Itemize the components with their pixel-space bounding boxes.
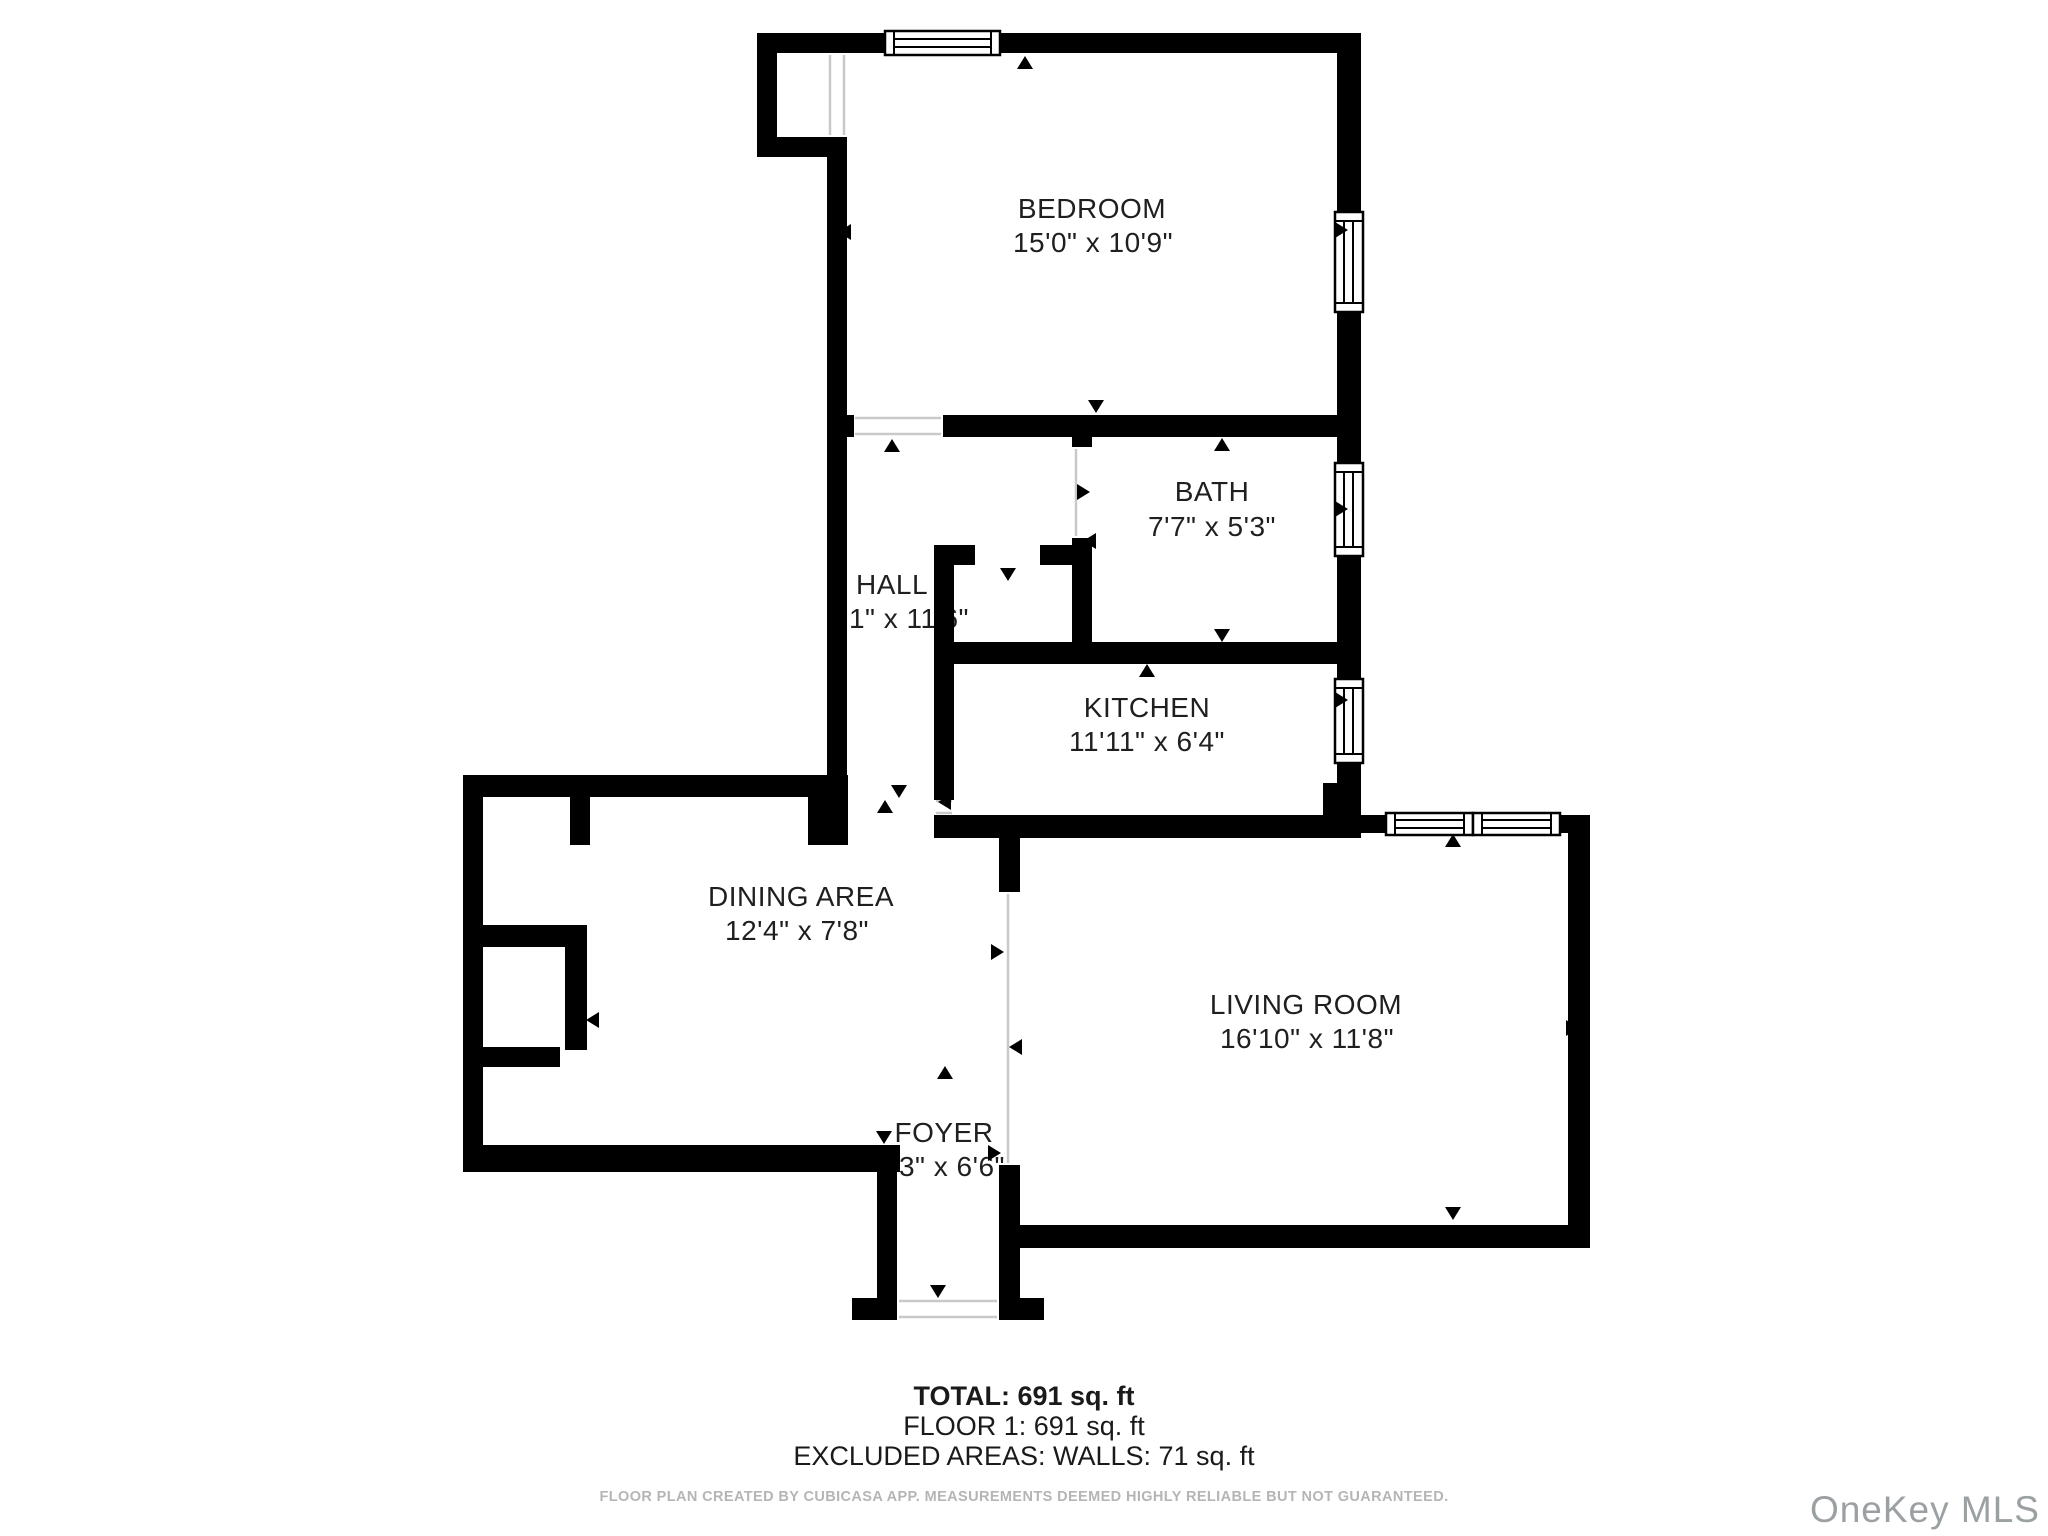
living-room-dimensions-label: 16'10" x 11'8" bbox=[1220, 1023, 1394, 1055]
excluded-area-text: EXCLUDED AREAS: WALLS: 71 sq. ft bbox=[793, 1441, 1254, 1471]
bedroom-name-label: BEDROOM bbox=[1018, 193, 1166, 225]
dining-area-name-label: DINING AREA bbox=[708, 881, 894, 913]
kitchen-name-label: KITCHEN bbox=[1084, 692, 1210, 724]
area-summary: TOTAL: 691 sq. ft FLOOR 1: 691 sq. ft EX… bbox=[793, 1381, 1254, 1471]
dining-area-dimensions-label: 12'4" x 7'8" bbox=[725, 915, 869, 947]
watermark-onekey-mls: OneKey MLS bbox=[1810, 1489, 2040, 1531]
bath-name-label: BATH bbox=[1175, 476, 1250, 508]
labels-layer: BEDROOM 15'0" x 10'9" BATH 7'7" x 5'3" H… bbox=[0, 0, 2048, 1536]
foyer-name-label: FOYER bbox=[895, 1117, 994, 1149]
kitchen-dimensions-label: 11'11" x 6'4" bbox=[1069, 726, 1225, 758]
floor-plan-page: 7'1" x 11'6" 3'3" x 6'6" bbox=[0, 0, 2048, 1536]
bedroom-dimensions-label: 15'0" x 10'9" bbox=[1013, 227, 1173, 259]
bath-dimensions-label: 7'7" x 5'3" bbox=[1148, 511, 1276, 543]
total-area-text: TOTAL: 691 sq. ft bbox=[793, 1381, 1254, 1411]
floor-area-text: FLOOR 1: 691 sq. ft bbox=[793, 1411, 1254, 1441]
disclaimer-text: FLOOR PLAN CREATED BY CUBICASA APP. MEAS… bbox=[600, 1489, 1449, 1505]
living-room-name-label: LIVING ROOM bbox=[1210, 989, 1402, 1021]
hall-name-label: HALL bbox=[856, 569, 928, 601]
